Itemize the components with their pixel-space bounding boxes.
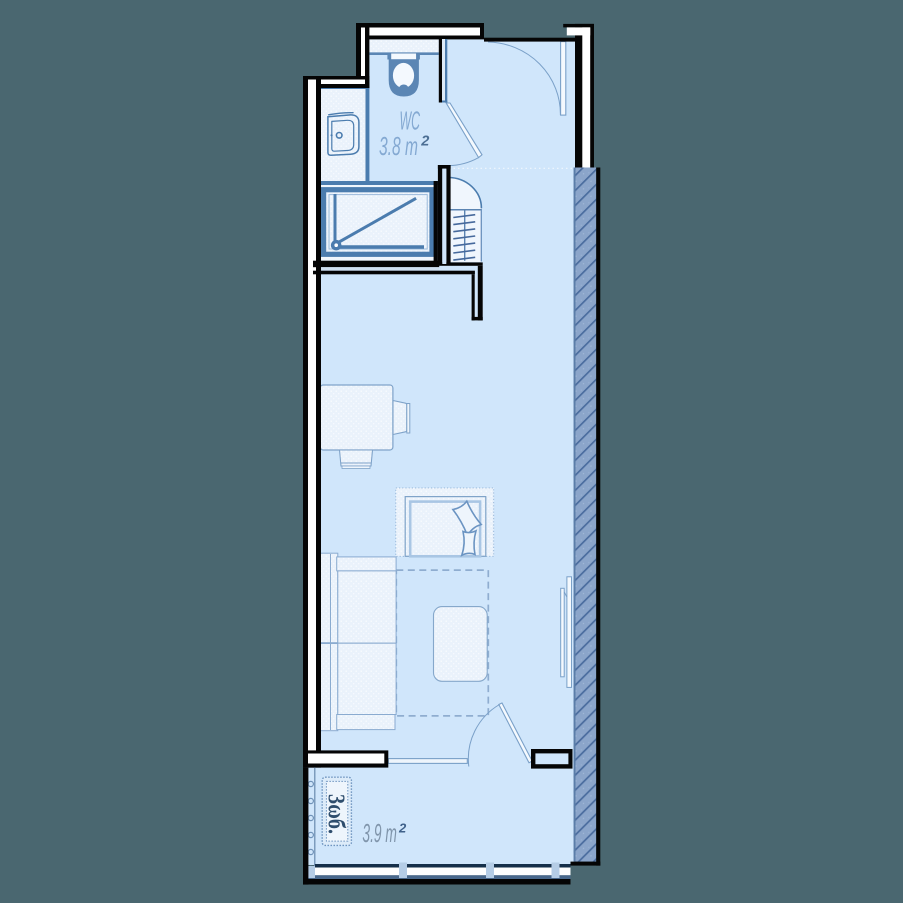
svg-text:3ωб.: 3ωб. (323, 794, 349, 834)
svg-text:2: 2 (420, 133, 429, 149)
svg-text:3.9 m: 3.9 m (362, 818, 397, 848)
svg-text:3.8 m: 3.8 m (379, 131, 418, 161)
svg-text:2: 2 (398, 821, 407, 836)
